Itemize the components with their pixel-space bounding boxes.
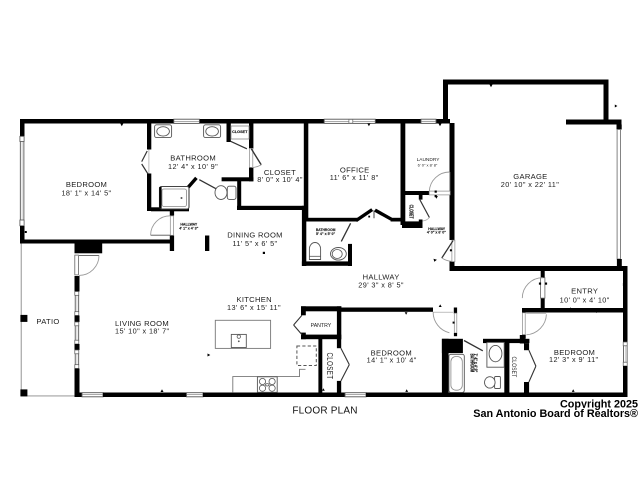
svg-text:CLOSET: CLOSET	[325, 352, 335, 379]
svg-text:8' 0" x 10' 4": 8' 0" x 10' 4"	[257, 175, 303, 184]
svg-text:6' 0" x 8' 8": 6' 0" x 8' 8"	[418, 162, 438, 167]
svg-text:FLOOR PLAN: FLOOR PLAN	[292, 405, 357, 416]
svg-text:PATIO: PATIO	[36, 317, 59, 326]
svg-text:BATHROOM: BATHROOM	[170, 153, 216, 162]
svg-text:12' 4" x 10' 9": 12' 4" x 10' 9"	[168, 162, 218, 171]
svg-text:7' 4" x 4' 9": 7' 4" x 4' 9"	[473, 354, 479, 373]
svg-text:13' 6" x 15' 11": 13' 6" x 15' 11"	[227, 303, 281, 312]
svg-text:11' 6" x 11' 8": 11' 6" x 11' 8"	[330, 173, 379, 182]
svg-text:4' 1" x 4' 3": 4' 1" x 4' 3"	[179, 226, 198, 230]
svg-text:18' 1" x 14' 5": 18' 1" x 14' 5"	[61, 189, 111, 198]
svg-text:20' 10" x 22' 11": 20' 10" x 22' 11"	[501, 180, 559, 189]
svg-text:PANTRY: PANTRY	[311, 323, 332, 329]
svg-text:5' 4" x 5' 0": 5' 4" x 5' 0"	[316, 232, 335, 236]
svg-text:ENTRY: ENTRY	[571, 287, 598, 296]
svg-text:14' 1" x 10' 4": 14' 1" x 10' 4"	[367, 356, 417, 365]
svg-text:15' 10" x 18' 7": 15' 10" x 18' 7"	[115, 327, 170, 336]
svg-text:4' 0" x 6' 0": 4' 0" x 6' 0"	[427, 231, 446, 235]
svg-text:11' 5" x 6' 5": 11' 5" x 6' 5"	[232, 239, 277, 248]
svg-text:10' 0" x 4' 10": 10' 0" x 4' 10"	[560, 296, 610, 305]
svg-text:CLOSET: CLOSET	[409, 205, 415, 219]
svg-text:12' 3" x 9' 11": 12' 3" x 9' 11"	[549, 355, 599, 364]
svg-text:HALLWAY: HALLWAY	[428, 227, 446, 231]
svg-text:CLOSET: CLOSET	[232, 130, 248, 134]
svg-text:29' 3" x 8' 5": 29' 3" x 8' 5"	[358, 281, 404, 290]
svg-text:San Antonio Board of Realtors®: San Antonio Board of Realtors®	[473, 408, 638, 420]
svg-text:CLOSET: CLOSET	[510, 357, 517, 378]
